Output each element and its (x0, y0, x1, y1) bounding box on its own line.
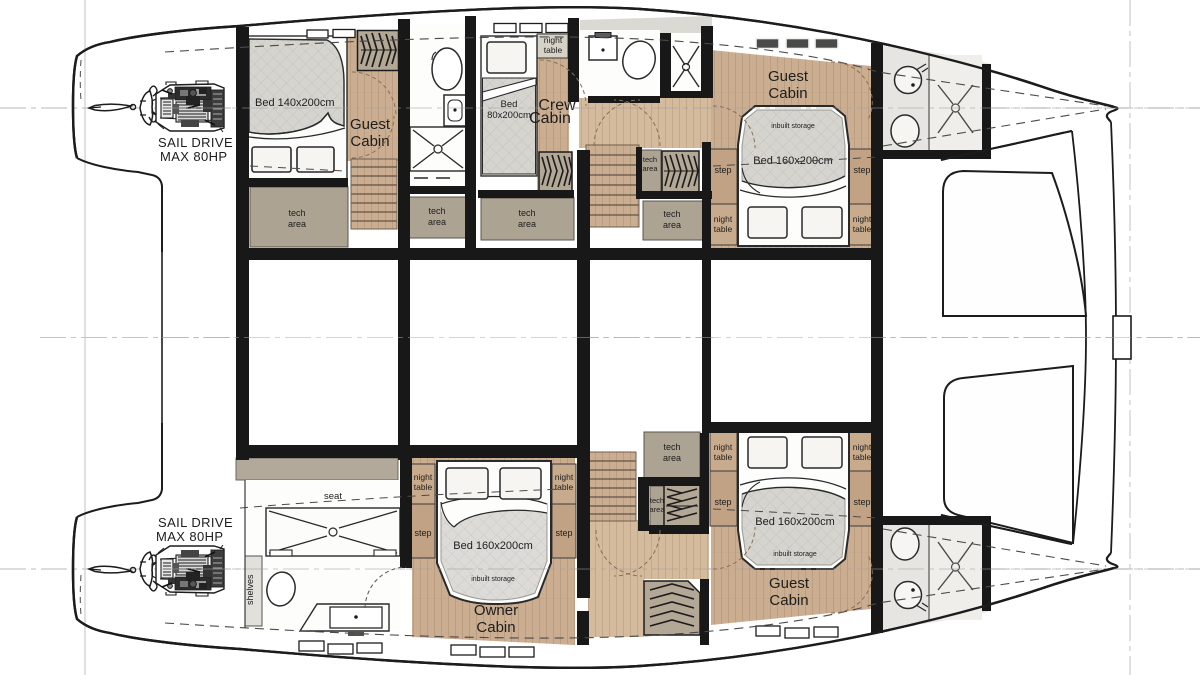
svg-text:area: area (428, 217, 446, 227)
svg-text:area: area (663, 453, 681, 463)
svg-text:Bed 140x200cm: Bed 140x200cm (255, 97, 335, 109)
svg-text:step: step (414, 528, 431, 538)
svg-text:inbuilt storage: inbuilt storage (771, 123, 815, 130)
svg-text:Guest: Guest (769, 575, 810, 592)
svg-text:step: step (853, 165, 870, 175)
svg-text:tech: tech (518, 208, 535, 218)
svg-text:table: table (853, 224, 872, 234)
svg-text:SAIL DRIVE: SAIL DRIVE (158, 135, 233, 150)
svg-text:tech: tech (643, 155, 657, 164)
svg-text:step: step (555, 528, 572, 538)
svg-text:tech: tech (663, 209, 680, 219)
svg-text:night: night (414, 472, 433, 482)
svg-text:tech: tech (663, 442, 680, 452)
svg-text:shelves: shelves (245, 574, 255, 605)
svg-text:MAX 80HP: MAX 80HP (156, 529, 224, 544)
svg-text:table: table (555, 482, 574, 492)
svg-text:Bed 160x200cm: Bed 160x200cm (753, 155, 833, 167)
svg-text:Guest: Guest (768, 68, 809, 85)
svg-text:night: night (853, 214, 872, 224)
svg-text:inbuilt storage: inbuilt storage (471, 576, 515, 583)
svg-text:table: table (714, 452, 733, 462)
svg-text:80x200cm: 80x200cm (487, 110, 531, 121)
svg-text:area: area (649, 505, 665, 514)
svg-text:Cabin: Cabin (476, 619, 515, 636)
svg-text:table: table (853, 452, 872, 462)
svg-text:MAX 80HP: MAX 80HP (160, 149, 228, 164)
svg-text:table: table (714, 224, 733, 234)
svg-text:Owner: Owner (474, 602, 518, 619)
svg-text:night: night (714, 442, 733, 452)
svg-text:Cabin: Cabin (350, 133, 389, 150)
svg-text:step: step (714, 497, 731, 507)
svg-text:Cabin: Cabin (769, 592, 808, 609)
svg-text:step: step (714, 165, 731, 175)
svg-text:tech: tech (650, 496, 664, 505)
svg-text:SAIL DRIVE: SAIL DRIVE (158, 515, 233, 530)
svg-text:table: table (414, 482, 433, 492)
svg-text:area: area (642, 164, 658, 173)
svg-text:area: area (518, 219, 536, 229)
svg-text:inbuilt storage: inbuilt storage (773, 551, 817, 558)
svg-text:step: step (853, 497, 870, 507)
svg-text:Cabin: Cabin (529, 110, 571, 127)
svg-text:Guest: Guest (350, 116, 391, 133)
svg-text:area: area (288, 219, 306, 229)
svg-text:area: area (663, 220, 681, 230)
svg-text:night: night (853, 442, 872, 452)
svg-text:Bed 160x200cm: Bed 160x200cm (453, 540, 533, 552)
svg-text:night: night (714, 214, 733, 224)
svg-text:Cabin: Cabin (768, 85, 807, 102)
svg-text:table: table (544, 45, 563, 55)
svg-text:night: night (555, 472, 574, 482)
svg-text:tech: tech (428, 206, 445, 216)
svg-text:Bed 160x200cm: Bed 160x200cm (755, 516, 835, 528)
svg-text:tech: tech (288, 208, 305, 218)
